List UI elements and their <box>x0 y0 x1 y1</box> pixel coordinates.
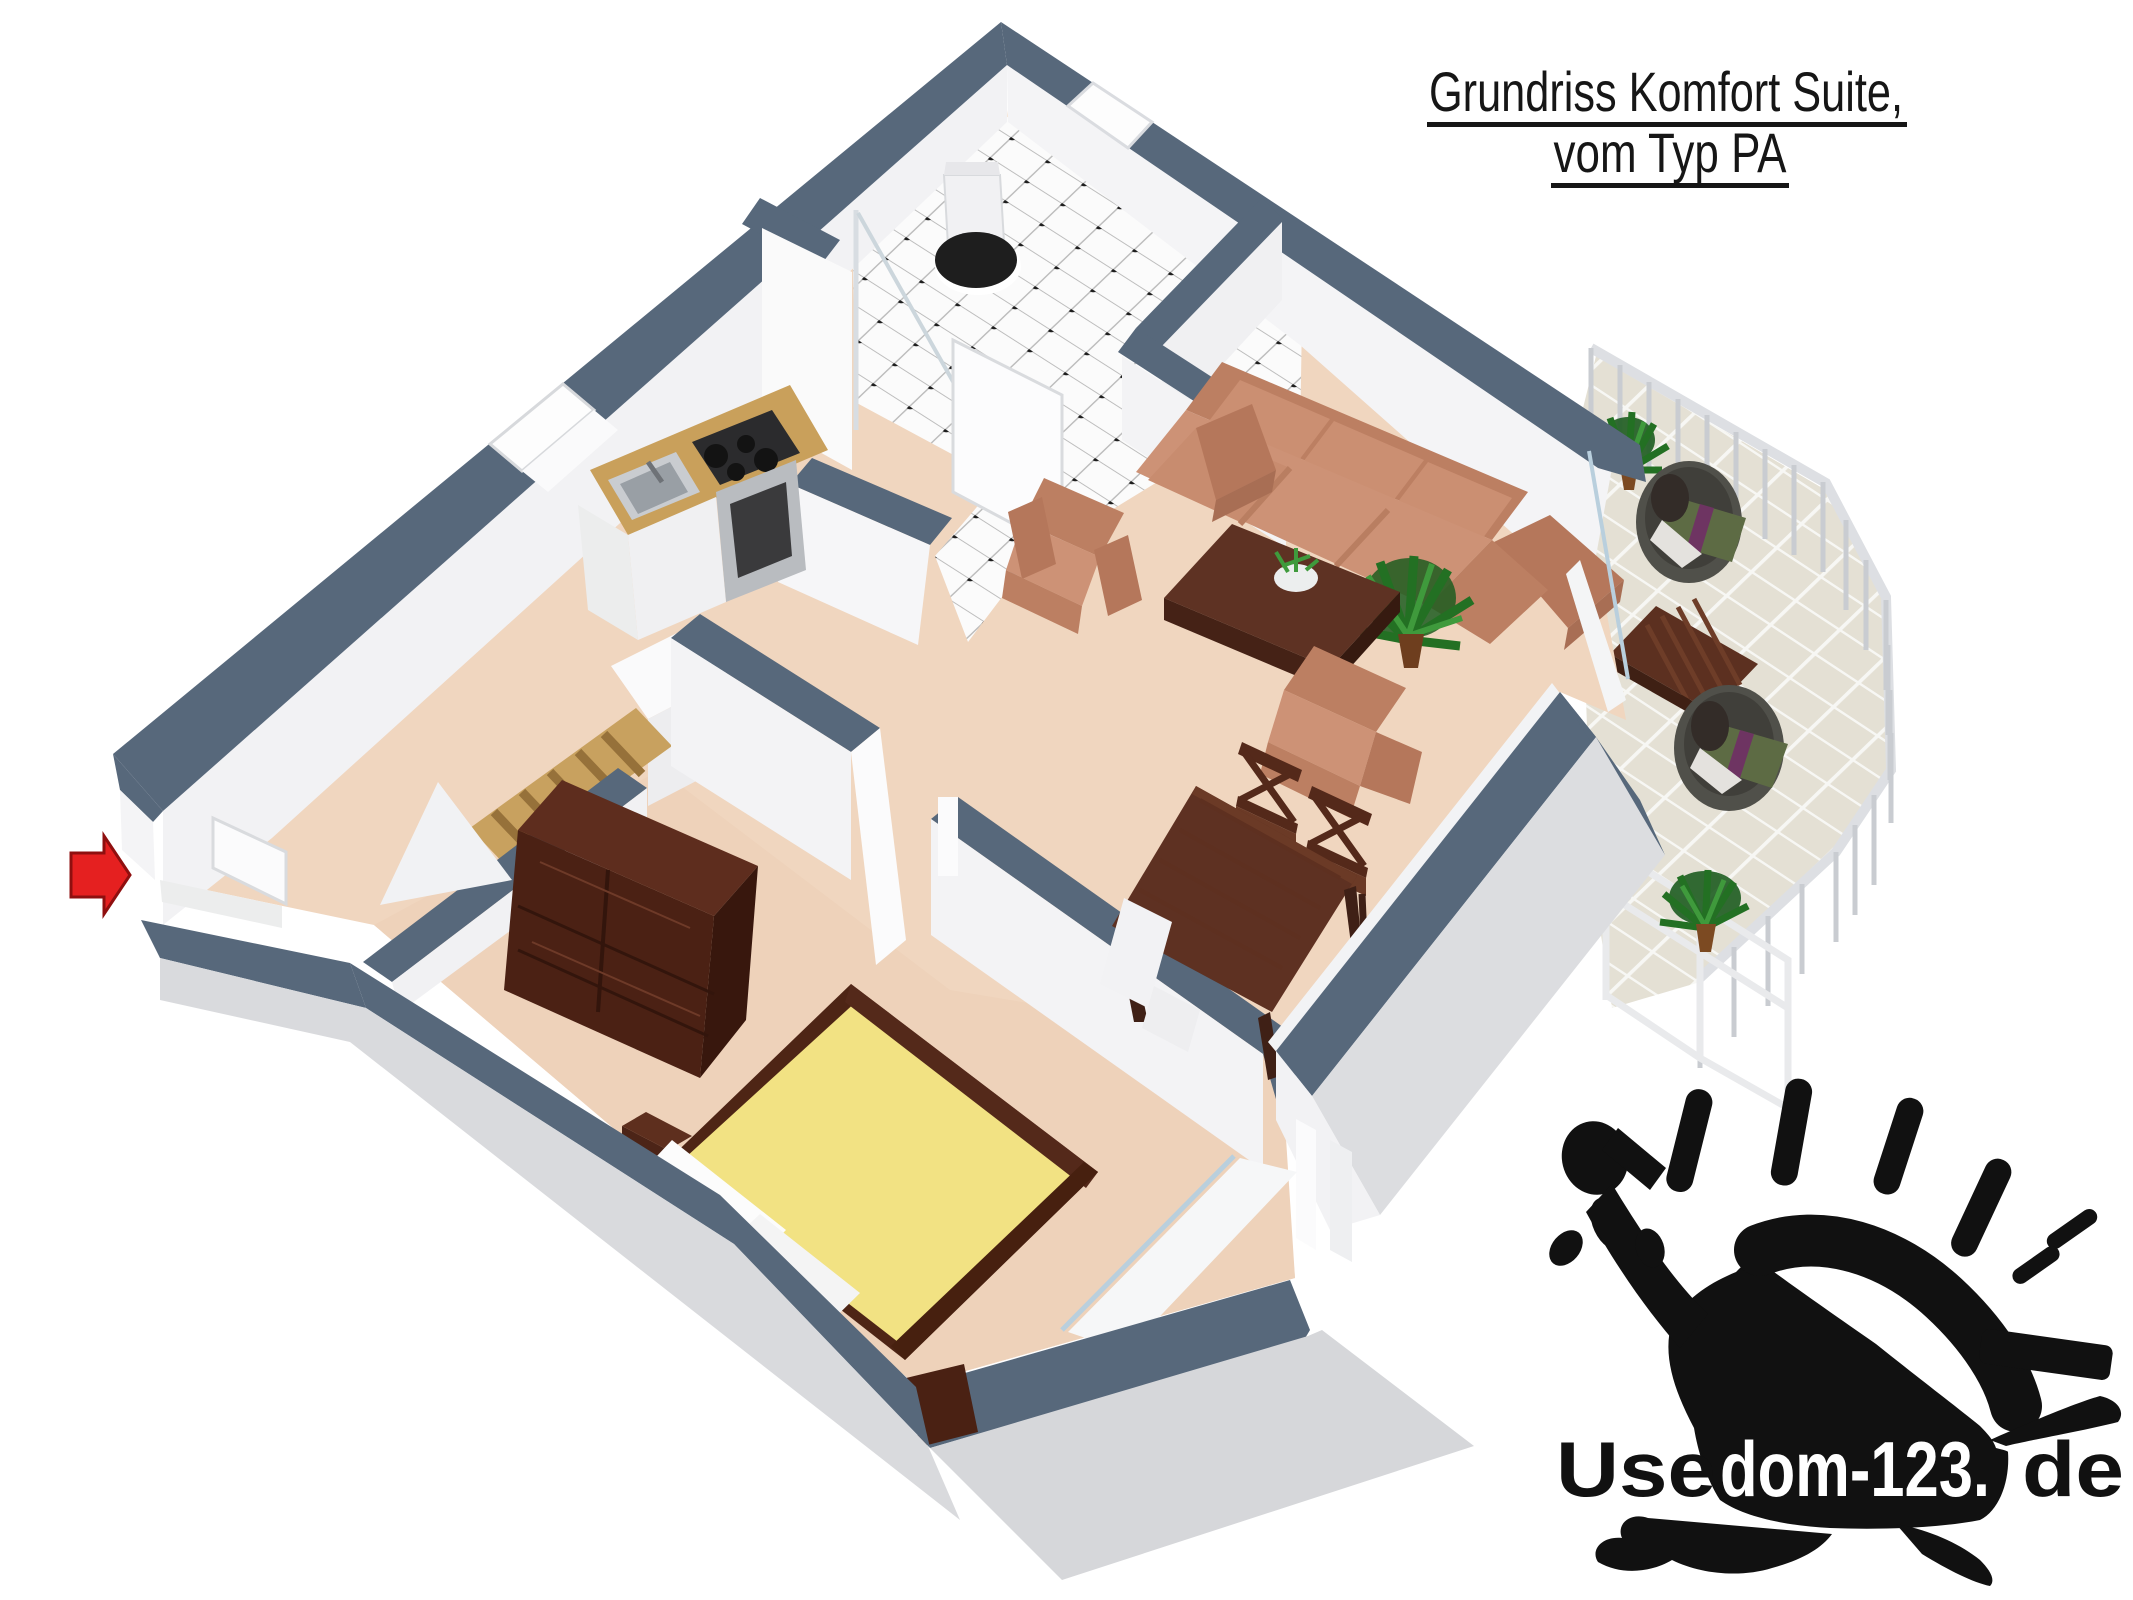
svg-text:de: de <box>2022 1425 2124 1513</box>
svg-text:Use: Use <box>1556 1425 1716 1513</box>
svg-text:Grundriss Komfort Suite,: Grundriss Komfort Suite, <box>1429 60 1903 123</box>
svg-text:vom Typ PA: vom Typ PA <box>1554 121 1788 184</box>
svg-text:dom-123.: dom-123. <box>1720 1425 1990 1513</box>
